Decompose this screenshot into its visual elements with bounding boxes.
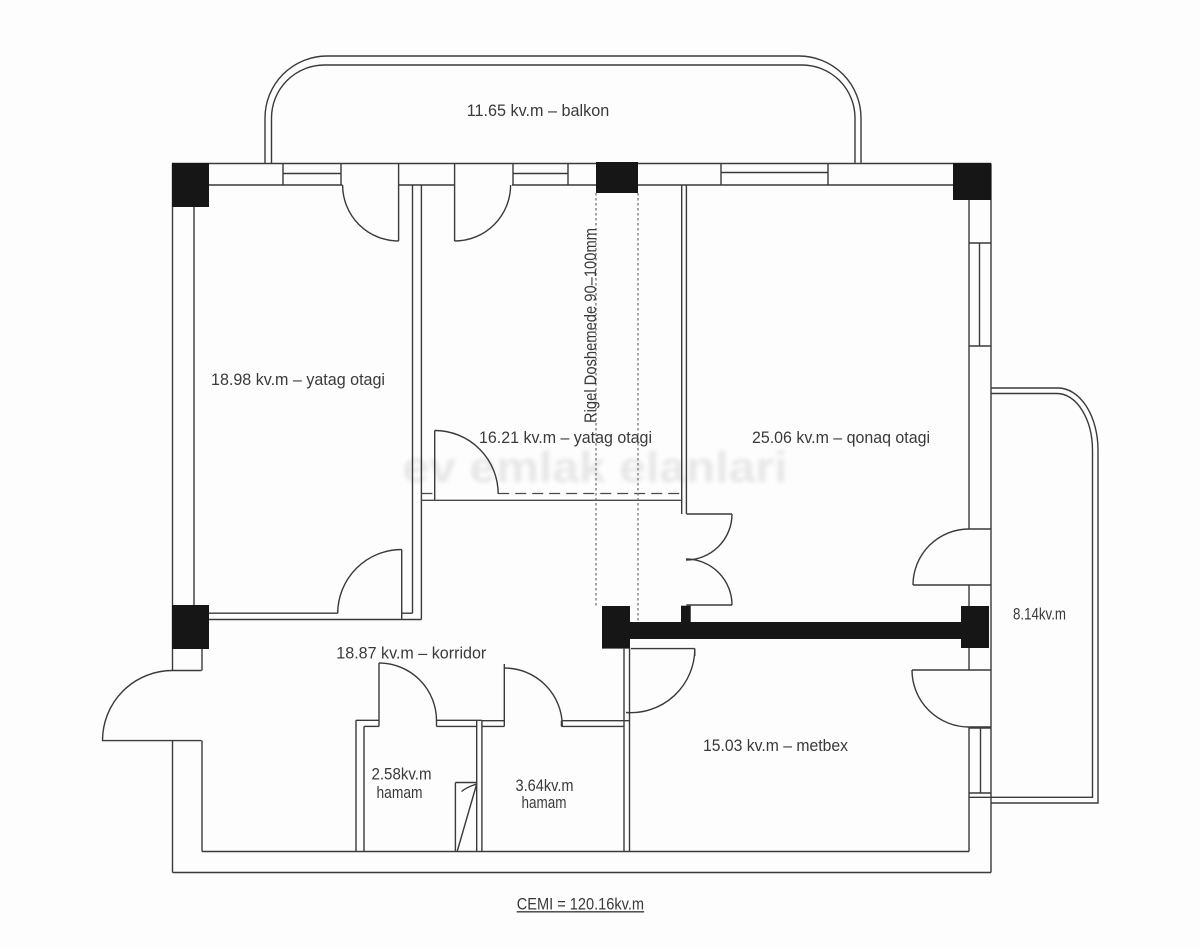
svg-text:15.03 kv.m – metbex: 15.03 kv.m – metbex — [703, 736, 848, 755]
svg-text:16.21 kv.m – yatag otagi: 16.21 kv.m – yatag otagi — [479, 428, 652, 447]
svg-text:hamam: hamam — [522, 793, 567, 812]
svg-text:Rigel Doshemede 90–100mm: Rigel Doshemede 90–100mm — [581, 228, 600, 423]
svg-text:8.14kv.m: 8.14kv.m — [1013, 604, 1066, 623]
svg-text:25.06 kv.m – qonaq otagi: 25.06 kv.m – qonaq otagi — [752, 428, 930, 447]
svg-text:CEMI = 120.16kv.m: CEMI = 120.16kv.m — [517, 895, 644, 914]
svg-text:2.58kv.m: 2.58kv.m — [372, 765, 432, 784]
svg-text:18.98 kv.m – yatag otagi: 18.98 kv.m – yatag otagi — [211, 370, 385, 389]
svg-text:11.65 kv.m – balkon: 11.65 kv.m – balkon — [467, 101, 610, 120]
svg-text:18.87 kv.m – korridor: 18.87 kv.m – korridor — [336, 644, 486, 663]
svg-text:hamam: hamam — [377, 783, 423, 802]
svg-text:ev emlak elanlari: ev emlak elanlari — [403, 443, 788, 492]
